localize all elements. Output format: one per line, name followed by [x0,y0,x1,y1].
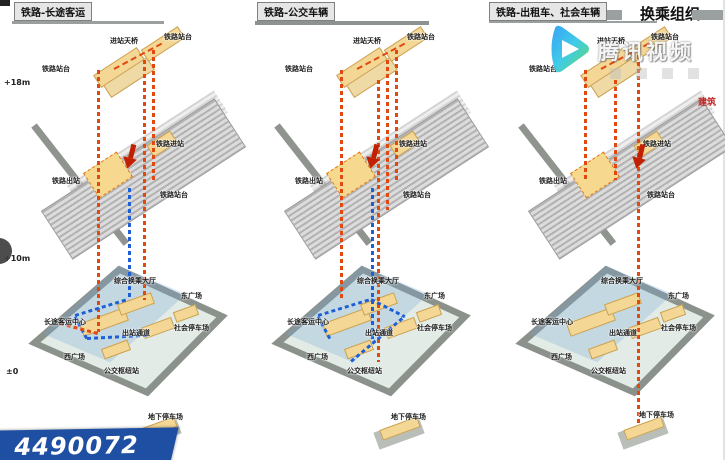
label-rail-enter: 铁路进站 [156,139,184,149]
label-exit-corridor: 出站通道 [365,328,393,338]
page-title: 换乘组织 [640,3,700,24]
label-social-parking: 社会停车场 [174,323,209,333]
label-longdist-center: 长途客运中心 [531,317,573,327]
flow-line-orange [97,70,100,332]
label-transfer-hall: 综合换乘大厅 [357,276,399,286]
label-platform-left: 铁路站台 [42,64,70,74]
label-bridge: 进站天桥 [353,36,381,46]
label-east-square: 东广场 [181,291,202,301]
watermark-brand: 腾讯视频 [598,36,694,66]
panel-rail-bus: 铁路-公交车辆 铁路站台 进站天桥 铁路站台 铁路出站 铁路进站 铁路站台 [243,0,485,460]
label-transfer-hall: 综合换乘大厅 [114,276,156,286]
id-number: 4490072 [0,427,175,460]
panel-rail-longdistance: 铁路-长途客运 铁路站台 进站天桥 铁路站台 铁路出站 铁路进站 铁路站台 [0,0,242,460]
label-social-parking: 社会停车场 [417,323,452,333]
flow-line-blue [371,188,374,340]
title-underline [12,21,164,24]
label-bus-hub: 公交枢纽站 [104,366,139,376]
label-platform-right: 铁路站台 [407,32,435,42]
elevation-label-18m: +18m [4,78,30,87]
label-exit-corridor: 出站通道 [609,328,637,338]
label-platform-right: 铁路站台 [164,32,192,42]
watermark-subglyph [610,68,621,79]
flow-line-orange [152,50,155,180]
title-underline [489,21,657,23]
label-longdist-center: 长途客运中心 [287,317,329,327]
flow-line-orange [614,80,617,180]
flow-line-orange [377,80,380,362]
heading-bar-right [692,10,723,20]
label-rail-platform: 铁路站台 [403,190,431,200]
label-east-square: 东广场 [424,291,445,301]
label-west-square: 西广场 [307,352,328,362]
slide-frame: +18m +10m ±0 换乘组织 建筑 铁路-长途客运 铁路站台 进站天桥 铁… [0,0,725,460]
video-frame-corner [0,0,10,6]
label-rail-enter: 铁路进站 [399,139,427,149]
label-west-square: 西广场 [64,352,85,362]
watermark-subglyph [662,68,673,79]
id-ribbon: 4490072 [0,427,179,460]
label-underground-parking: 地下停车场 [148,412,183,422]
label-underground-parking: 地下停车场 [391,412,426,422]
label-transfer-hall: 综合换乘大厅 [601,276,643,286]
label-rail-platform: 铁路站台 [160,190,188,200]
play-icon [544,24,592,74]
label-social-parking: 社会停车场 [661,323,696,333]
label-east-square: 东广场 [668,291,689,301]
flow-line-orange [386,60,389,210]
panel-title: 铁路-长途客运 [14,2,92,21]
label-platform-left: 铁路站台 [285,64,313,74]
watermark-subglyph [636,68,647,79]
label-underground-parking: 地下停车场 [639,410,674,420]
label-rail-exit: 铁路出站 [295,176,323,186]
label-rail-exit: 铁路出站 [52,176,80,186]
watermark-subglyph [688,68,699,79]
title-underline [255,21,429,25]
panel-title: 铁路-出租车、社会车辆 [489,2,607,21]
label-west-square: 西广场 [551,352,572,362]
elevation-label-0m: ±0 [6,367,18,376]
flow-line-orange [637,48,640,426]
label-bus-hub: 公交枢纽站 [591,366,626,376]
flow-line-orange [340,70,343,300]
flow-line-orange [395,50,398,180]
red-annotation: 建筑 [698,95,716,108]
label-bus-hub: 公交枢纽站 [347,366,382,376]
label-bridge: 进站天桥 [110,36,138,46]
label-rail-platform: 铁路站台 [647,190,675,200]
label-rail-exit: 铁路出站 [539,176,567,186]
tencent-video-watermark: 腾讯视频 [544,24,724,82]
label-longdist-center: 长途客运中心 [44,317,86,327]
label-exit-corridor: 出站通道 [122,328,150,338]
panel-title: 铁路-公交车辆 [257,2,335,21]
flow-line-orange [143,60,146,300]
flow-line-orange [584,70,587,180]
